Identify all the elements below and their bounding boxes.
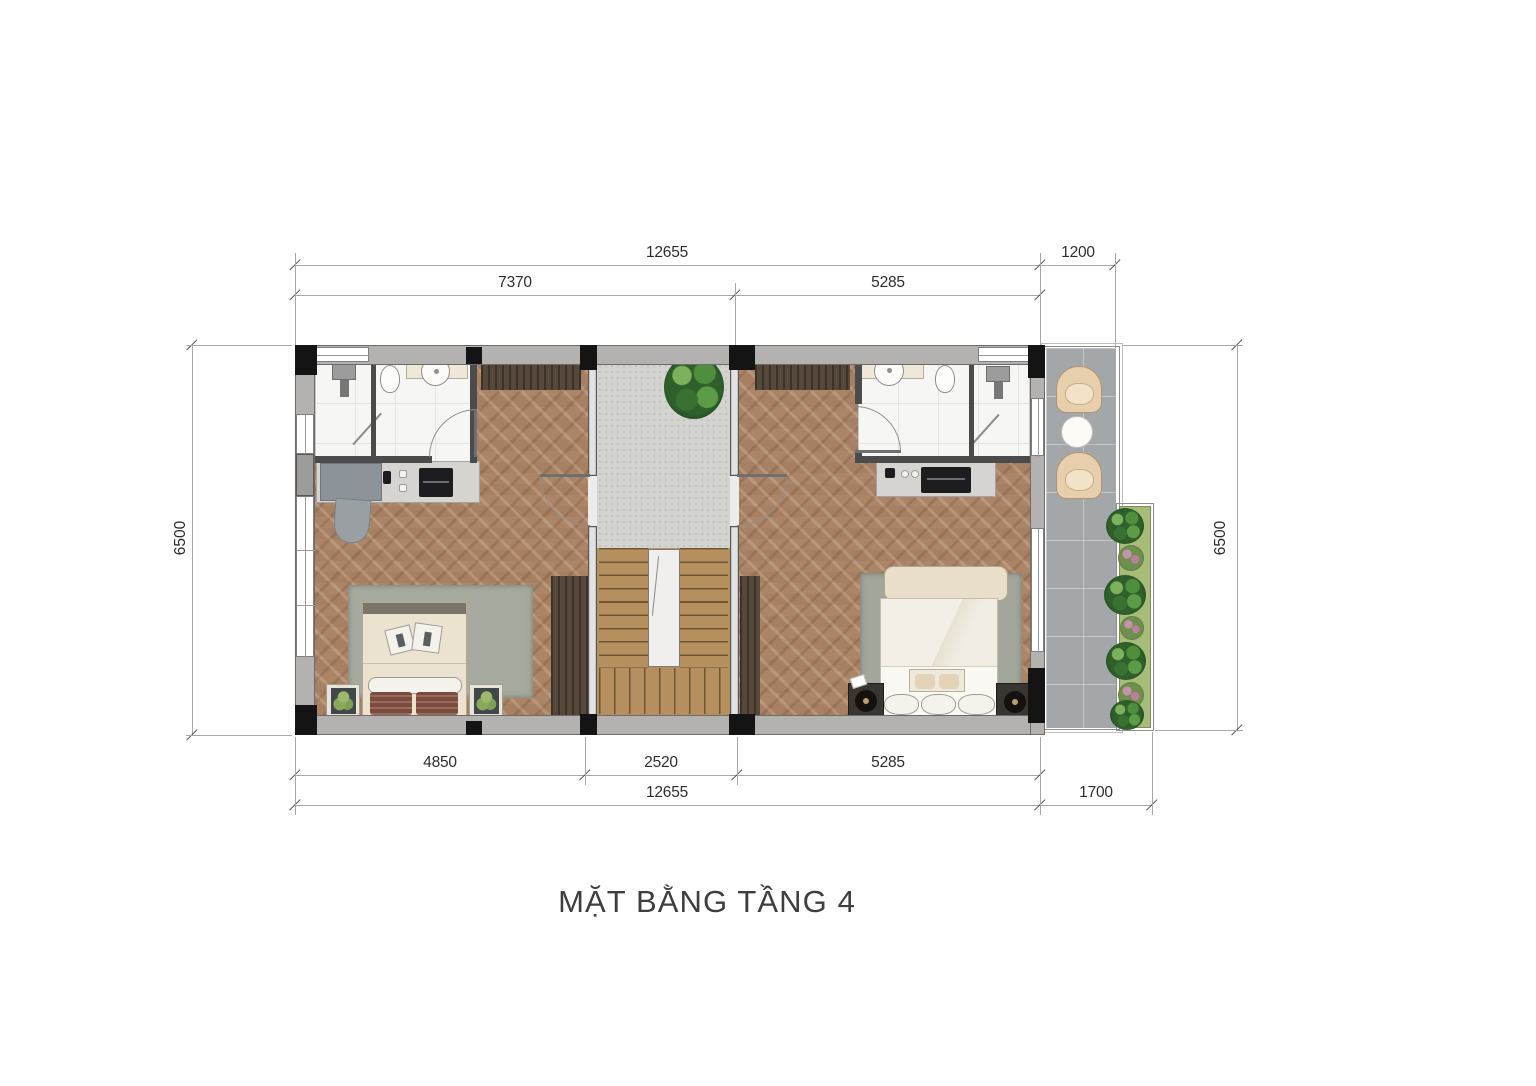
planter-flower <box>1118 545 1144 571</box>
extension-line <box>1155 730 1243 731</box>
extension-line <box>1122 345 1243 346</box>
tray-cushion <box>915 674 935 689</box>
landing-wall-left-lower <box>588 526 597 717</box>
extension-line <box>1040 737 1041 815</box>
dim-line-top-inner <box>295 295 1040 296</box>
column <box>729 714 755 735</box>
nightstand-left <box>326 684 360 716</box>
column <box>580 714 597 735</box>
nightstand-turntable <box>848 683 884 717</box>
stair-landing <box>599 668 728 714</box>
extension-line <box>1115 253 1116 348</box>
window-mullion <box>979 355 1033 356</box>
dim-label: 6500 <box>172 521 190 555</box>
window-left-small <box>296 414 314 454</box>
foot-pillow <box>884 694 919 715</box>
desk-right-bedroom <box>876 461 996 497</box>
wardrobe-top-right-bedroom <box>755 363 850 390</box>
column <box>580 345 597 370</box>
door-leaf-bathroom-left <box>474 409 477 457</box>
door-leaf-bathroom-right <box>855 450 901 453</box>
dim-label: 12655 <box>646 784 688 802</box>
window-mullion <box>305 415 306 455</box>
throw-cushion <box>416 692 458 715</box>
desk-phone <box>885 468 895 478</box>
extension-line <box>295 737 296 815</box>
bathroom-right-divider <box>969 363 974 457</box>
bathroom-right-south-wall <box>855 456 1030 463</box>
window-left-long <box>296 496 314 657</box>
vinyl-record <box>855 690 877 712</box>
extension-line <box>1040 253 1041 345</box>
column <box>729 345 755 370</box>
stair-flight-right <box>680 548 728 668</box>
plant-leaves <box>333 690 354 712</box>
desk-chair-left <box>320 463 382 501</box>
nightstand-right <box>469 684 503 716</box>
stair-flight-left <box>599 548 648 668</box>
potted-plant <box>474 688 499 714</box>
headboard-right-bed <box>884 566 1008 601</box>
foot-pillow <box>921 694 956 715</box>
console-line <box>927 478 965 480</box>
balcony-round-table <box>1061 416 1093 448</box>
dim-line-right <box>1237 345 1238 730</box>
duvet-fold-line <box>363 663 466 664</box>
landing-wall-right-upper <box>730 363 739 476</box>
dim-label: 4850 <box>423 754 457 772</box>
bathroom-left-divider <box>371 363 376 457</box>
window-right-bedroom <box>1031 528 1044 652</box>
window-top-bathroom-left <box>313 347 369 362</box>
potted-plant <box>331 688 356 714</box>
extension-line <box>737 737 738 785</box>
window-mullion <box>297 550 315 551</box>
planter-shrub <box>1110 700 1144 730</box>
planter-shrub <box>1104 575 1146 615</box>
extension-line <box>735 283 736 345</box>
exterior-wall-top <box>295 345 1045 365</box>
column <box>295 345 317 375</box>
vinyl-label <box>1012 699 1018 705</box>
column <box>466 721 482 735</box>
window-mullion <box>1038 529 1039 653</box>
extension-line <box>186 345 292 346</box>
floor-plan: 12655 1200 7370 5285 4850 2520 5285 1265… <box>0 0 1536 1086</box>
dim-line-left <box>192 345 193 735</box>
dim-label: 7370 <box>498 274 532 292</box>
bed-left <box>362 602 467 716</box>
plant-leaves <box>476 690 497 712</box>
column <box>466 347 482 364</box>
desk-item <box>399 484 407 492</box>
dim-label: 5285 <box>871 754 905 772</box>
faucet-dot <box>434 369 439 374</box>
window-mullion <box>1038 399 1039 457</box>
dim-label: 6500 <box>1212 521 1230 555</box>
planter-shrub <box>1106 508 1144 544</box>
extension-line <box>186 735 292 736</box>
bathroom-right-west-wall-upper <box>855 363 862 404</box>
window-top-bathroom-right <box>978 347 1032 362</box>
dim-label: 1200 <box>1061 244 1095 262</box>
planter-shrub <box>1106 642 1146 680</box>
laptop-screen-line <box>423 481 449 483</box>
dim-label: 2520 <box>644 754 678 772</box>
av-console <box>921 467 971 493</box>
armchair-cushion <box>1065 469 1094 491</box>
column <box>1028 345 1045 378</box>
vinyl-record <box>1004 691 1026 713</box>
window-mullion <box>305 497 306 658</box>
vinyl-label <box>863 698 869 704</box>
pillow-motif <box>423 632 432 647</box>
desk-item <box>901 470 909 478</box>
bathroom-left-south-wall <box>315 456 432 463</box>
column <box>295 705 317 735</box>
foot-pillow <box>958 694 995 715</box>
landing-wall-left-upper <box>588 363 597 476</box>
door-leaf-bedroom-right <box>737 474 787 477</box>
bed-right <box>880 598 998 716</box>
dim-label: 5285 <box>871 274 905 292</box>
wardrobe-top-left-bedroom <box>481 363 581 390</box>
wall-pier-left <box>296 454 314 496</box>
desk-item <box>911 470 919 478</box>
door-leaf-bedroom-left <box>540 474 590 477</box>
shower-hose <box>340 380 349 397</box>
duvet <box>881 599 997 667</box>
pillow-motif <box>396 633 406 647</box>
laptop <box>419 468 453 497</box>
page-title: MẶT BẰNG TẦNG 4 <box>558 884 856 920</box>
extension-line <box>1152 732 1153 815</box>
wardrobe-tall-left-bedroom <box>551 576 588 715</box>
toilet-fixture <box>380 365 400 393</box>
balcony-glass-door <box>1031 398 1044 456</box>
faucet-dot <box>887 368 892 373</box>
balcony-armchair <box>1056 366 1102 413</box>
exterior-wall-bottom <box>295 715 1045 735</box>
extension-line <box>295 253 296 345</box>
decor-pillow <box>411 622 443 654</box>
dim-line-top-outer <box>295 265 1115 266</box>
shower-head <box>986 366 1010 382</box>
shower-hose <box>994 382 1003 399</box>
decor-pillow <box>384 624 416 656</box>
armchair-cushion <box>1065 383 1094 405</box>
dim-label: 12655 <box>646 244 688 262</box>
extension-line <box>585 737 586 785</box>
toilet-fixture <box>935 365 955 393</box>
desk-item <box>399 470 407 478</box>
desk-phone <box>383 471 391 484</box>
balcony-armchair <box>1056 452 1102 499</box>
landing-wall-right-lower <box>730 526 739 717</box>
foot-tray <box>909 669 965 692</box>
planter-flower <box>1120 616 1144 640</box>
tray-cushion <box>939 674 959 689</box>
throw-cushion <box>370 692 412 715</box>
dim-line-bottom-inner <box>295 775 1040 776</box>
dim-label: 1700 <box>1079 784 1113 802</box>
nightstand-turntable <box>996 683 1032 717</box>
bed-foot-board <box>363 603 466 614</box>
window-mullion <box>297 605 315 606</box>
window-mullion <box>314 355 370 356</box>
dim-line-bottom-outer <box>295 805 1152 806</box>
wardrobe-tall-right-bedroom <box>740 576 760 715</box>
column <box>1028 668 1045 723</box>
shower-head <box>332 364 356 380</box>
